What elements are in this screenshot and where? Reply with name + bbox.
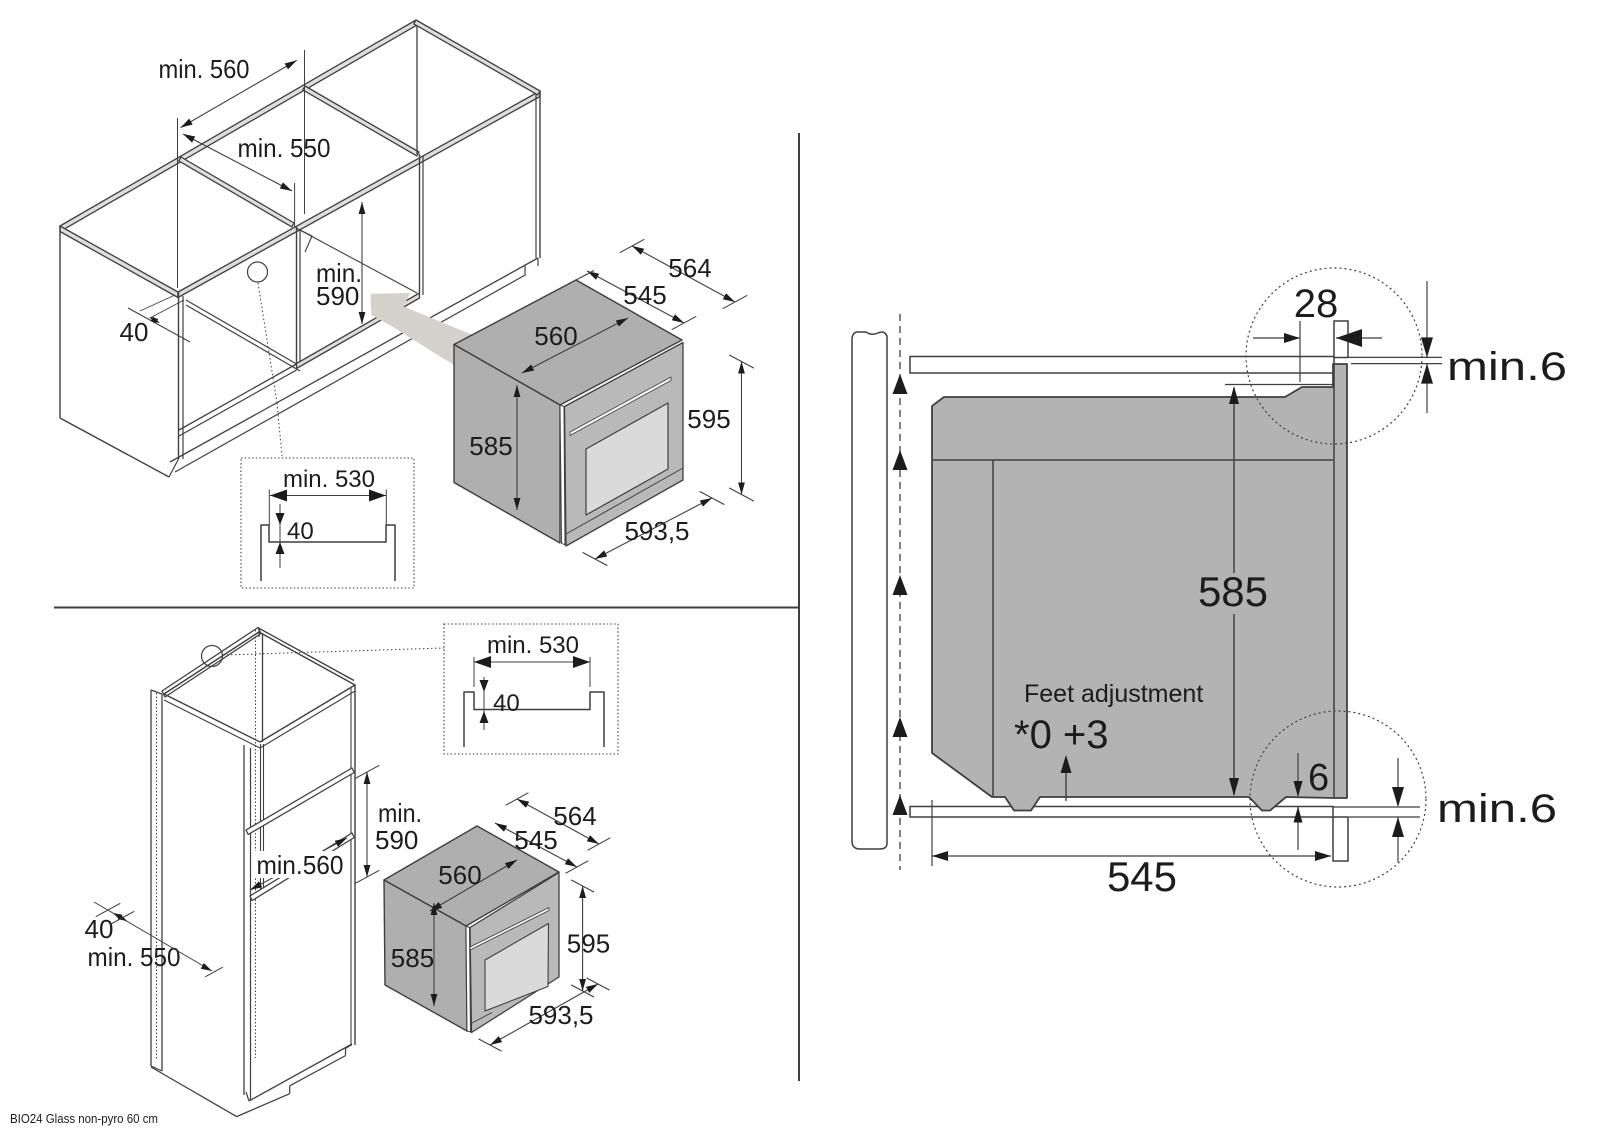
svg-text:560: 560	[438, 860, 481, 890]
svg-text:40: 40	[287, 518, 314, 545]
svg-text:590: 590	[375, 825, 418, 855]
svg-text:593,5: 593,5	[624, 516, 689, 546]
svg-text:560: 560	[534, 321, 577, 351]
svg-text:min. 530: min. 530	[283, 466, 375, 493]
svg-text:*0 +3: *0 +3	[1014, 713, 1109, 757]
svg-text:min.6: min.6	[1447, 345, 1567, 389]
svg-text:min.560: min.560	[257, 850, 344, 880]
svg-text:585: 585	[1198, 568, 1268, 615]
svg-text:BIO24 Glass non-pyro 60 cm: BIO24 Glass non-pyro 60 cm	[10, 1111, 158, 1126]
svg-text:min. 550: min. 550	[238, 133, 331, 163]
svg-text:min. 560: min. 560	[159, 54, 250, 84]
svg-text:595: 595	[567, 929, 610, 959]
svg-text:593,5: 593,5	[528, 1000, 593, 1030]
svg-text:Feet adjustment: Feet adjustment	[1024, 680, 1203, 708]
svg-text:545: 545	[623, 280, 666, 310]
svg-text:min. 530: min. 530	[487, 632, 579, 659]
svg-text:564: 564	[553, 801, 596, 831]
svg-text:595: 595	[687, 404, 730, 434]
svg-text:545: 545	[514, 825, 557, 855]
svg-text:min.6: min.6	[1437, 787, 1557, 831]
svg-text:590: 590	[316, 281, 359, 311]
svg-text:40: 40	[120, 317, 149, 347]
svg-text:564: 564	[668, 253, 711, 283]
svg-text:6: 6	[1308, 757, 1329, 799]
svg-text:40: 40	[493, 690, 520, 717]
svg-text:585: 585	[469, 431, 512, 461]
svg-text:585: 585	[391, 943, 434, 973]
svg-text:545: 545	[1107, 853, 1177, 900]
svg-text:28: 28	[1294, 282, 1339, 326]
svg-text:min.: min.	[378, 798, 422, 828]
svg-text:min. 550: min. 550	[88, 942, 181, 972]
svg-text:40: 40	[85, 914, 114, 944]
